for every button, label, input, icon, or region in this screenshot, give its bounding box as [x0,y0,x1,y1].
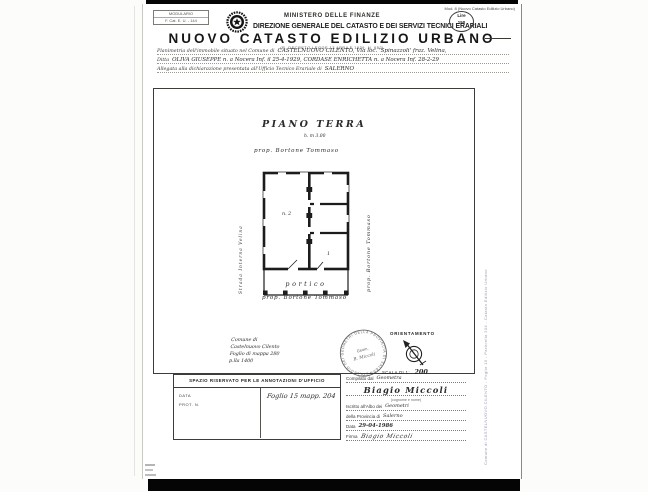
floor-label: PIANO TERRA [262,119,366,130]
name-caption: (cognome e nome) [346,398,466,402]
firma-label: Firma [346,433,358,440]
map-note-line2: Castelnuovo Cilento [230,344,280,351]
stamp-duty-amount: 150 [450,20,473,25]
compiled-label: Compilato dal [346,375,374,382]
scan-edge-bottom [148,478,520,491]
date-row: Data 29-04-1986 [346,423,466,431]
date-label: Data [346,423,356,430]
drawing-box: PIANO TERRA h. m 3.00 prop. Bortone Tomm… [153,88,475,374]
declaration-line-1-hand: CASTELNUOVO CILENTO, Via loc. 'Spinazzol… [278,48,447,54]
declaration-line-2-print: Ditta [157,58,169,63]
floor-height-note: h. m 3.00 [304,134,325,139]
office-annotations-box: SPAZIO RISERVATO PER LE ANNOTAZIONI D'UF… [173,374,341,440]
declaration-line-3-hand: SALERNO [325,66,354,72]
register-value: Geometri [385,403,466,410]
province-row: della Provincia di Salerno [346,413,466,421]
stamp-duty-lire: Lire [450,12,473,20]
declaration-line-1: Planimetria dell'immobile situato nel Co… [157,48,509,55]
register-row: Iscritto all'Albo dei Geometri [346,403,466,411]
register-label: Iscritto all'Albo dei [346,403,382,410]
office-box-header: SPAZIO RISERVATO PER LE ANNOTAZIONI D'UF… [174,375,340,388]
scan-artifact-line [134,6,135,476]
owner-label-right: prop. Bortone Tommaso [366,214,372,292]
firma-row: Firma Biagio Miccoli [346,433,466,441]
stamp-center-line2: B. Miccoli [352,352,376,363]
declaration-line-1-print: Planimetria dell'immobile situato nel Co… [157,49,275,54]
document-title: NUOVO CATASTO EDILIZIO URBANO [143,31,521,46]
modulario-line2: F. Cat. E. U. - 144 [154,18,208,24]
firma-signature: Biagio Miccoli [360,433,467,440]
province-value: Salerno [383,413,466,420]
scanned-document-canvas: MODULARIO F. Cat. E. U. - 144 MINISTERO … [0,0,648,492]
declaration-line-3-print: Allegata alla dichiarazione presentata a… [157,67,322,72]
office-data-label: DATA [179,393,191,398]
signature-block: Compilato dal Geometra Biagio Miccoli (c… [346,375,466,443]
compiled-value: Geometra [377,375,466,382]
date-value: 29-04-1986 [359,423,466,430]
archival-watermark: Comune di CASTELNUOVO CILENTO - Foglio 1… [483,269,488,465]
modulario-line1: MODULARIO [154,11,208,18]
title-dash [485,38,511,39]
office-note-hand: Foglio 15 mapp. 204 [266,392,336,400]
compiler-name-row: Biagio Miccoli [346,385,466,396]
small-room-label: 1 [327,251,330,257]
margin-mark [145,474,156,476]
declaration-line-2: Ditta OLIVA GIUSEPPE n. a Nocera Inf. il… [157,57,509,64]
margin-mark [145,469,153,471]
street-label-left: Strada Interna Velina [239,225,244,294]
map-reference-note: Comune di Castelnuovo Cilento Foglio di … [229,337,282,365]
modulario-box: MODULARIO F. Cat. E. U. - 144 [153,10,209,25]
map-note-line1: Comune di [231,337,281,344]
compiled-row: Compilato dal Geometra [346,375,466,383]
orientation-label: ORIENTAMENTO [390,331,435,336]
province-label: della Provincia di [346,413,380,420]
portico-label: portico [285,280,326,288]
document-page: MODULARIO F. Cat. E. U. - 144 MINISTERO … [142,4,522,479]
room-label: n. 2 [282,211,291,217]
ministry-line: MINISTERO DELLE FINANZE [284,13,380,19]
declaration-line-2-hand: OLIVA GIUSEPPE n. a Nocera Inf. il 25-4-… [172,57,439,63]
map-note-line3: Foglio di mappa 280 [229,351,279,358]
stamp-duty-circle: Lire 150 [449,11,474,32]
map-note-line4: p.lla 1400 [229,358,279,365]
office-box-divider [260,388,261,438]
owner-label-bottom: prop. Bortone Tommaso [262,295,347,301]
compiler-name: Biagio Miccoli [346,385,466,395]
mod-reference: Mod. 8 (Nuovo Catasto Edilizio Urbano) [445,6,515,11]
margin-mark [145,464,155,466]
declaration-line-3: Allegata alla dichiarazione presentata a… [157,66,509,73]
office-prot-label: PROT. N. [179,402,200,407]
owner-label-top: prop. Bortone Tommaso [254,148,339,154]
stamp-center-line1: Geom. [356,346,369,354]
